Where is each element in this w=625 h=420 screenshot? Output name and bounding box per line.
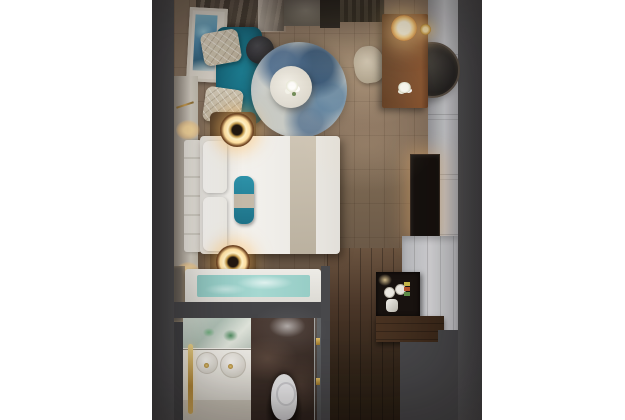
desk-lamp (391, 15, 417, 41)
vanity-glass-shelf (183, 318, 251, 350)
wall-step (438, 330, 458, 344)
bottom-right-wall (400, 342, 458, 420)
sink (220, 352, 246, 378)
right-outer-wall (458, 0, 482, 420)
sheer-curtain (258, 0, 286, 32)
gold-hinge (316, 378, 320, 385)
desk-flowers (398, 82, 411, 93)
accent-pillow-band (234, 194, 254, 208)
minibar-cabinet (376, 272, 420, 318)
wall-sconce-glow (176, 120, 200, 140)
nightstand-ring-lamp (220, 113, 254, 147)
gold-faucet (228, 364, 233, 369)
wall-mounted-tv (410, 154, 440, 238)
throw-pillow (199, 28, 242, 67)
bathroom-corridor-wall (321, 266, 330, 420)
gold-faucet (204, 363, 209, 368)
entry-console (376, 316, 444, 342)
flower-vase (286, 80, 298, 92)
window-frame (320, 0, 340, 28)
window-blinds (340, 0, 384, 22)
gold-hinge (316, 338, 320, 345)
room-render (152, 0, 482, 420)
bed-pillow (203, 141, 227, 193)
tea-box (404, 287, 410, 291)
bathroom-floor (183, 400, 251, 420)
minibar-spotlight (378, 274, 392, 286)
bed-runner (290, 136, 316, 254)
white-canvas (0, 0, 625, 420)
left-outer-wall (152, 0, 174, 420)
glass-partition-edge (183, 349, 251, 350)
coffee-cup (384, 287, 395, 298)
teal-accent-pillow (234, 176, 254, 224)
kettle (386, 299, 398, 312)
gold-wall-sconce (420, 24, 431, 35)
bathtub-water (197, 275, 310, 297)
toilet (271, 374, 297, 420)
tea-box (404, 292, 410, 296)
gold-towel-rail (188, 344, 193, 414)
bed-pillow (203, 197, 227, 251)
tea-box (404, 282, 410, 286)
bathtub (185, 269, 321, 304)
window-glass (284, 0, 320, 26)
bathroom-divider-wall (174, 302, 330, 318)
toilet-seat (276, 382, 296, 406)
